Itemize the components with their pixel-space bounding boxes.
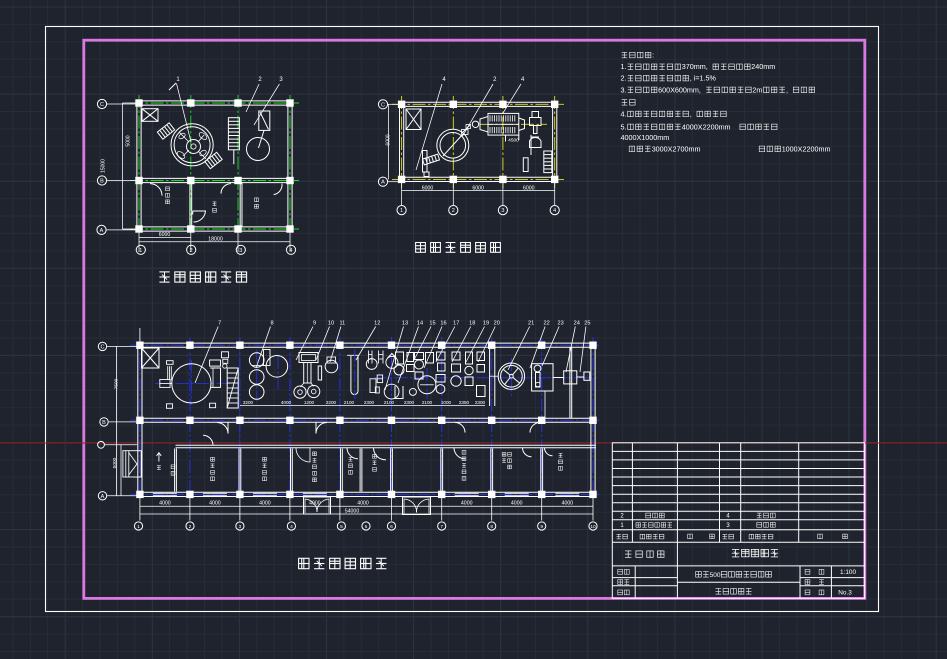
svg-text:A: A (381, 180, 385, 186)
svg-text:A: A (100, 228, 104, 234)
svg-text:4000: 4000 (357, 501, 369, 507)
svg-text::: : (652, 51, 654, 60)
svg-text:2300: 2300 (475, 400, 486, 405)
svg-text:,: , (699, 85, 701, 94)
svg-text:4000: 4000 (281, 400, 292, 405)
svg-text:240mm: 240mm (751, 62, 775, 71)
svg-text:3.: 3. (621, 85, 627, 94)
svg-text:4: 4 (289, 248, 292, 254)
svg-text:B: B (100, 179, 104, 185)
svg-text:11: 11 (339, 321, 345, 327)
svg-text:2100: 2100 (344, 400, 355, 405)
svg-text:9: 9 (540, 524, 543, 530)
svg-text:4000X1000mm: 4000X1000mm (621, 133, 670, 142)
svg-text:2m: 2m (752, 85, 762, 94)
svg-text:16: 16 (440, 321, 446, 327)
svg-text:8: 8 (490, 524, 493, 530)
svg-text:4000: 4000 (309, 501, 321, 507)
svg-text:3000X2700mm: 3000X2700mm (652, 144, 701, 153)
svg-text:4000: 4000 (259, 501, 271, 507)
svg-text:4.: 4. (621, 109, 627, 118)
svg-text:12: 12 (374, 321, 380, 327)
svg-text:2100: 2100 (422, 400, 433, 405)
svg-text:4000: 4000 (562, 501, 574, 507)
svg-text:19: 19 (483, 321, 489, 327)
svg-text:5.: 5. (621, 122, 627, 131)
svg-text:3: 3 (239, 524, 242, 530)
svg-text:1000X2200mm: 1000X2200mm (782, 144, 831, 153)
svg-text:600X600mm: 600X600mm (658, 85, 699, 94)
svg-text:4000X2200mm: 4000X2200mm (682, 122, 731, 131)
svg-text:1000: 1000 (441, 400, 452, 405)
svg-text:2100: 2100 (384, 400, 395, 405)
svg-text:54000: 54000 (345, 509, 360, 515)
svg-text:6000: 6000 (159, 232, 171, 238)
svg-text:3: 3 (239, 248, 242, 254)
svg-text:1: 1 (400, 208, 403, 214)
svg-text:4500: 4500 (508, 138, 519, 144)
svg-text:1200: 1200 (304, 400, 315, 405)
svg-text:500: 500 (710, 572, 721, 579)
svg-text:1:100: 1:100 (840, 569, 856, 576)
svg-text:5000: 5000 (126, 135, 132, 146)
svg-text:6000: 6000 (472, 185, 484, 191)
svg-text:3200: 3200 (243, 400, 254, 405)
svg-text:25: 25 (584, 321, 590, 327)
svg-text:C: C (101, 344, 105, 350)
svg-text:1.: 1. (621, 62, 627, 71)
svg-text:6: 6 (390, 524, 393, 530)
svg-text:3: 3 (501, 208, 504, 214)
svg-text:18: 18 (469, 321, 475, 327)
svg-text:7: 7 (440, 524, 443, 530)
svg-text:370mm: 370mm (682, 62, 706, 71)
svg-text:2: 2 (190, 248, 193, 254)
svg-text:, i=1.5%: , i=1.5% (690, 74, 717, 83)
svg-text:23: 23 (557, 321, 563, 327)
svg-text:C: C (100, 102, 104, 108)
svg-text:8: 8 (270, 321, 273, 327)
svg-text:2.: 2. (621, 74, 627, 83)
svg-text:20: 20 (494, 321, 500, 327)
svg-text:4000: 4000 (159, 501, 171, 507)
svg-text:2300: 2300 (364, 400, 375, 405)
svg-text:10: 10 (590, 524, 596, 530)
svg-text:15: 15 (429, 321, 435, 327)
svg-text:4000: 4000 (461, 501, 473, 507)
svg-text:4: 4 (290, 524, 293, 530)
svg-text:C: C (381, 102, 385, 108)
svg-text:2350: 2350 (459, 400, 470, 405)
svg-text:2200: 2200 (326, 400, 337, 405)
svg-text:13: 13 (402, 321, 408, 327)
svg-text:7: 7 (218, 321, 221, 327)
svg-text:6000: 6000 (523, 185, 535, 191)
svg-text:10: 10 (328, 321, 334, 327)
svg-text:5: 5 (365, 524, 368, 530)
svg-text:,: , (706, 62, 708, 71)
svg-text:2300: 2300 (404, 400, 415, 405)
svg-text:17: 17 (453, 321, 459, 327)
svg-text:4000: 4000 (511, 501, 523, 507)
svg-text:5000: 5000 (112, 457, 118, 468)
svg-text:6000: 6000 (386, 134, 392, 145)
svg-text:1: 1 (139, 248, 142, 254)
svg-text:9: 9 (313, 321, 316, 327)
svg-text:18000: 18000 (208, 237, 223, 243)
svg-text:15000: 15000 (101, 159, 107, 173)
svg-text:5: 5 (340, 524, 343, 530)
svg-text:21: 21 (528, 321, 534, 327)
svg-text:2: 2 (189, 524, 192, 530)
svg-text:24: 24 (574, 321, 580, 327)
svg-text:,: , (786, 85, 788, 94)
svg-text:4000: 4000 (209, 501, 221, 507)
svg-text:B: B (102, 420, 106, 426)
svg-text:7500: 7500 (114, 378, 120, 389)
svg-text:2: 2 (452, 208, 455, 214)
svg-text:,: , (690, 109, 692, 118)
svg-text:4: 4 (553, 208, 556, 214)
svg-text:6000: 6000 (422, 185, 434, 191)
svg-text:14: 14 (417, 321, 423, 327)
svg-text:22: 22 (543, 321, 549, 327)
svg-text:A: A (101, 494, 105, 500)
svg-text:No.3: No.3 (838, 590, 852, 597)
svg-text:1: 1 (137, 524, 140, 530)
